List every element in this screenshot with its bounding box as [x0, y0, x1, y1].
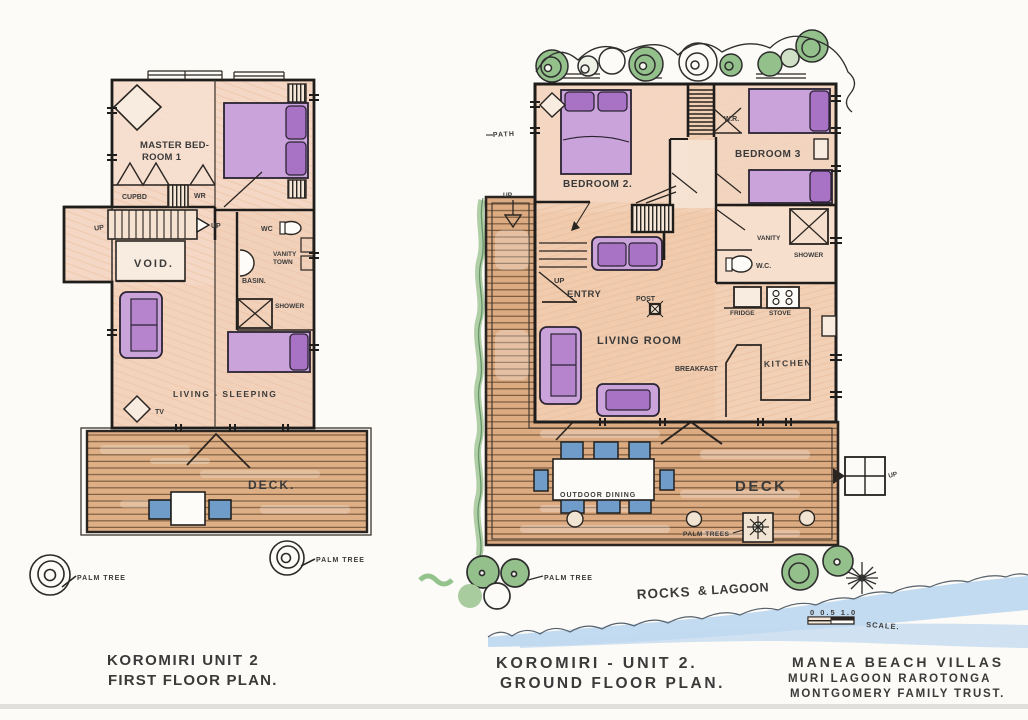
- svg-text:BREAKFAST: BREAKFAST: [675, 366, 719, 373]
- svg-text:FRIDGE: FRIDGE: [730, 310, 755, 317]
- svg-text:SHOWER: SHOWER: [794, 252, 824, 259]
- svg-text:DECK.: DECK.: [248, 478, 295, 492]
- svg-text:BEDROOM 3: BEDROOM 3: [735, 149, 801, 160]
- svg-text:TV: TV: [155, 409, 164, 416]
- svg-text:UP: UP: [94, 224, 105, 232]
- svg-text:MASTER BED-: MASTER BED-: [140, 140, 209, 151]
- svg-text:MONTGOMERY FAMILY TRUST.: MONTGOMERY FAMILY TRUST.: [790, 688, 1005, 700]
- svg-text:UP.: UP.: [503, 192, 513, 199]
- svg-text:UP: UP: [211, 223, 221, 230]
- svg-text:PALM TREE: PALM TREE: [544, 575, 593, 582]
- svg-text:DECK: DECK: [735, 478, 788, 495]
- svg-text:OUTDOOR DINING: OUTDOOR DINING: [560, 492, 636, 499]
- svg-text:KOROMIRI - UNIT 2.: KOROMIRI - UNIT 2.: [496, 655, 698, 672]
- svg-text:PATH: PATH: [493, 131, 515, 139]
- svg-text:KOROMIRI UNIT 2: KOROMIRI UNIT 2: [107, 652, 259, 669]
- svg-text:BASIN.: BASIN.: [242, 278, 266, 285]
- svg-text:W.C.: W.C.: [756, 263, 771, 270]
- svg-text:VANITY: VANITY: [757, 235, 781, 242]
- svg-text:GROUND FLOOR PLAN.: GROUND FLOOR PLAN.: [500, 675, 725, 692]
- svg-text:MANEA BEACH VILLAS: MANEA BEACH VILLAS: [792, 654, 1004, 670]
- svg-text:ENTRY: ENTRY: [567, 289, 602, 300]
- svg-text:PALM TREES: PALM TREES: [683, 531, 730, 538]
- svg-text:UP: UP: [554, 276, 564, 285]
- svg-text:VANITY: VANITY: [273, 251, 297, 258]
- svg-text:W.R.: W.R.: [724, 116, 739, 123]
- svg-text:WC: WC: [261, 226, 273, 233]
- svg-text:LIVING ROOM: LIVING ROOM: [597, 335, 682, 347]
- svg-text:TOWN: TOWN: [273, 259, 293, 266]
- svg-text:POST: POST: [636, 296, 656, 303]
- svg-text:ROCKS: ROCKS: [636, 584, 690, 602]
- svg-text:0 0.5 1.0: 0 0.5 1.0: [810, 608, 857, 617]
- svg-text:FIRST FLOOR PLAN.: FIRST FLOOR PLAN.: [108, 672, 278, 689]
- svg-text:PALM TREE: PALM TREE: [316, 557, 365, 564]
- svg-text:BEDROOM 2.: BEDROOM 2.: [563, 179, 632, 190]
- svg-text:VOID.: VOID.: [134, 258, 174, 270]
- svg-text:SHOWER: SHOWER: [275, 303, 305, 310]
- svg-text:KITCHEN: KITCHEN: [764, 357, 813, 369]
- svg-text:STOVE: STOVE: [769, 310, 792, 317]
- svg-text:ROOM 1: ROOM 1: [142, 152, 182, 163]
- svg-text:MURI LAGOON RAROTONGA: MURI LAGOON RAROTONGA: [788, 673, 991, 685]
- svg-text:LIVING - SLEEPING: LIVING - SLEEPING: [173, 389, 277, 399]
- svg-text:WR: WR: [194, 193, 206, 200]
- svg-text:PALM TREE: PALM TREE: [77, 575, 126, 582]
- svg-text:CUPBD: CUPBD: [122, 194, 147, 201]
